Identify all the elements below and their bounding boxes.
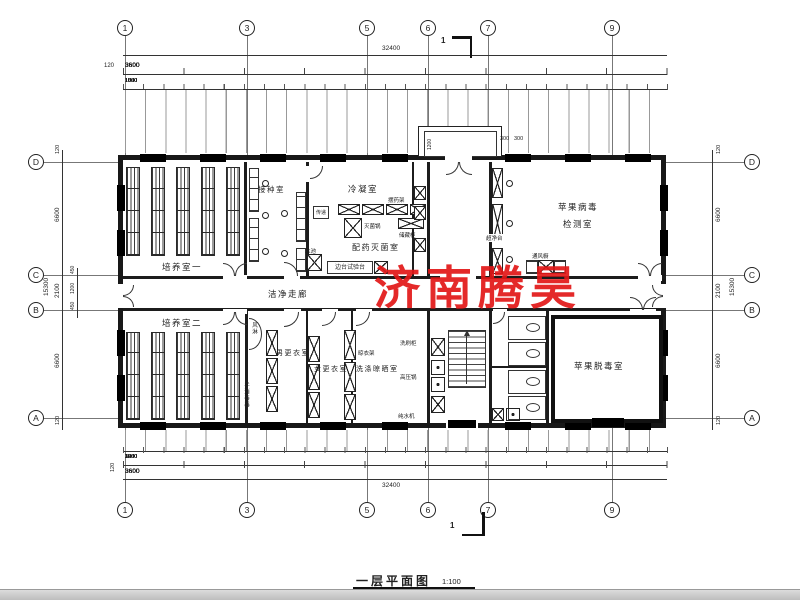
locker [266,386,278,412]
toilet-fixture [526,403,540,412]
dimension-porch: 300 [500,136,509,142]
dimension-total-top: 32400 [382,45,400,52]
door-arc [643,297,656,310]
window [260,154,286,162]
dimension-row-top-sub: 1050150010501050150010501050150010501050… [125,77,665,86]
toilet-fixture [526,323,540,332]
door-arc [356,312,370,326]
stairs-up-arrow [464,330,470,336]
floor-plan-canvas: 1 3 5 6 7 9 1 3 5 6 7 9 D C B A D C B A … [0,0,800,600]
dimension-label: 1200 [70,280,76,296]
toilet-fixture [526,377,540,386]
room-label-nangeng: 男更衣室 [276,348,310,358]
equip-label-clean-bench: 超净台 [486,234,503,242]
equip-label-sink: 水池 [305,247,316,255]
room-label-tuodu: 苹果脱毒室 [574,360,624,372]
dimension-line [712,150,713,430]
dimension-label: 120 [716,143,722,156]
dimension-porch: 1200 [427,134,433,154]
watermark-text: 济南腾昊 [374,252,582,318]
dimension-label: 3600 [125,61,139,70]
dimension-label: 1050 [125,77,137,86]
stool [262,212,269,219]
equip-label-wash-cabinet: 洗刷柜 [400,339,417,347]
dimension-label: 2100 [54,278,61,304]
stool [506,220,513,227]
buffer-box [414,238,426,252]
dimension-line [123,55,667,56]
culture-rack [176,167,190,256]
culture-rack [226,332,240,420]
window [200,154,226,162]
window [320,422,346,430]
wall-toilet-divider [491,366,548,368]
grid-bubble-top-1: 1 [117,20,133,36]
dimension-label: 6600 [715,348,722,374]
door-arc [322,312,336,326]
lab-bench [296,192,306,242]
grid-bubble-top-5: 5 [359,20,375,36]
drying-rack [344,330,356,360]
room-label-bingdu-1: 苹果病毒 [558,201,598,213]
buffer-box [414,206,426,220]
room-label-zoulang: 洁净走廊 [268,288,308,300]
autoclave [431,360,445,375]
buffer-box [414,186,426,200]
side-test-bench: 边台试验台 [327,261,373,274]
equip-label-hand-sanitizer: 手消毒器 [242,382,250,422]
dimension-line [123,479,667,480]
culture-rack [126,332,140,420]
dimension-label: 120 [55,414,61,427]
witness-lines [125,90,666,153]
grid-bubble-right-C: C [744,267,760,283]
stool [281,250,288,257]
sink [307,254,322,271]
door-arc [446,162,459,175]
clean-bench [492,168,503,198]
dimension-label: 2100 [715,278,722,304]
dimension-label: 450 [70,264,76,276]
door-arc [459,162,472,175]
door-arc [235,312,247,325]
grid-bubble-left-D: D [28,154,44,170]
bench-x [362,204,384,215]
dimension-total-right: 15300 [729,270,736,304]
dimension-label: 6600 [715,202,722,228]
door-arc [123,285,134,296]
grid-bubble-right-A: A [744,410,760,426]
door-gap [445,154,472,161]
room-label-lengning: 冷凝室 [348,183,378,195]
door-arc [630,297,643,310]
sterilizer [344,218,362,238]
culture-rack [151,332,165,420]
dimension-label: 3600 [125,467,139,476]
stairs-up-arrow [466,336,467,384]
dimension-line [77,268,78,318]
dimension-label: 6600 [54,202,61,228]
dimension-label: 120 [716,414,722,427]
grid-bubble-left-C: C [28,267,44,283]
grid-bubble-bottom-6: 6 [420,502,436,518]
bench-x [386,204,408,215]
grid-bubble-left-B: B [28,302,44,318]
section-mark-label-top: 1 [441,36,445,45]
dimension-row-top-bays: 360036003600360036003600360036003600 [125,61,665,70]
window [565,154,591,162]
window [117,375,125,401]
door-arc [652,285,663,296]
grid-line [44,275,122,276]
window [140,422,166,430]
staircase [448,330,486,388]
dimension-label: 120 [55,143,61,156]
door-arc [123,296,134,307]
grid-bubble-right-D: D [744,154,760,170]
equip-label-sterilizer: 灭菌锅 [364,222,381,230]
locker [266,358,278,384]
grid-line [44,310,122,311]
window [382,154,408,162]
water-purifier [431,396,445,413]
section-mark-bottom [482,512,485,536]
section-mark-top [470,36,473,58]
equip-label-storage: 储藏柜 [399,231,416,239]
dimension-line [62,150,63,430]
room-label-bingdu-2: 检测室 [563,218,593,230]
equip-label-water-purifier: 纯水机 [398,412,415,420]
culture-rack [201,332,215,420]
window [117,330,125,356]
section-mark-bottom [462,534,484,537]
dimension-porch: 300 [514,136,523,142]
door-arc [650,263,662,276]
toilet-fixture [526,349,540,358]
window [505,154,531,162]
dimension-row-bottom-bays: 360036003600360036003600360036003600 [125,467,665,476]
room-label-jiezhong: 接种室 [258,184,285,195]
room-label-xidi: 洗涤晾晒室 [356,364,399,374]
dimension-total-bottom: 32400 [382,482,400,489]
door-arc [235,263,247,276]
dimension-edge-top: 120 [104,63,114,69]
culture-rack [151,167,165,256]
grid-bubble-top-9: 9 [604,20,620,36]
grid-line [44,162,122,163]
dimension-label: 6600 [54,348,61,374]
section-mark-label-bottom: 1 [450,521,454,530]
autoclave [431,377,445,392]
equip-label-autoclave: 高压锅 [400,373,417,381]
grid-bubble-bottom-9: 9 [604,502,620,518]
dimension-label: 3600 [125,453,137,462]
toilet-basin [506,408,520,421]
culture-rack [176,332,190,420]
stool [262,248,269,255]
culture-rack [201,167,215,256]
room-label-nvgeng: 女更衣室 [314,364,348,374]
grid-bubble-bottom-3: 3 [239,502,255,518]
window [200,422,226,430]
wash-cabinet [431,338,445,356]
grid-bubble-left-A: A [28,410,44,426]
room-label-peiyang1: 培养室一 [162,261,202,273]
grid-bubble-top-7: 7 [480,20,496,36]
dimension-row-bottom-sub: 3600105015001050105015001050105015001050… [125,453,665,462]
door-arc [223,263,235,276]
door-threshold [592,418,624,427]
window [320,154,346,162]
window [382,422,408,430]
door-arc [638,263,650,276]
culture-rack [126,167,140,256]
scan-footer-bar [0,589,800,600]
lab-bench [249,218,259,262]
drying-rack [344,394,356,420]
dimension-edge-bottom: 120 [110,460,116,474]
grid-line [666,310,744,311]
window [660,185,668,211]
equip-label-clothes-rack: 晾衣架 [358,349,375,357]
equip-label-rack: 摆药架 [388,196,405,204]
drawing-scale: 1:100 [442,577,461,586]
bench-x [338,204,360,215]
door-threshold [448,420,476,428]
grid-bubble-right-B: B [744,302,760,318]
wall-partition [427,311,430,423]
grid-bubble-top-6: 6 [420,20,436,36]
dimension-label: 450 [70,300,76,312]
window [117,230,125,256]
equip-label-air-shower: 风淋 [250,322,258,348]
door-arc [310,166,323,179]
window [625,154,651,162]
stool [281,210,288,217]
window [140,154,166,162]
window [660,230,668,256]
grid-line [666,418,744,419]
toilet-sink [492,408,504,421]
culture-rack [226,167,240,256]
dimension-line [123,74,667,75]
locker [308,392,320,418]
room-label-peiyang2: 培养室二 [162,317,202,329]
grid-bubble-top-3: 3 [239,20,255,36]
dimension-total-left: 15300 [43,270,50,304]
window [505,422,531,430]
door-arc [284,312,299,327]
grid-bubble-bottom-1: 1 [117,502,133,518]
door-arc [223,312,235,325]
grid-bubble-bottom-5: 5 [359,502,375,518]
wall-partition [244,162,247,276]
pass-through-window: 传递 [313,206,329,219]
grid-line [666,162,744,163]
stool [506,180,513,187]
window [260,422,286,430]
window [117,185,125,211]
